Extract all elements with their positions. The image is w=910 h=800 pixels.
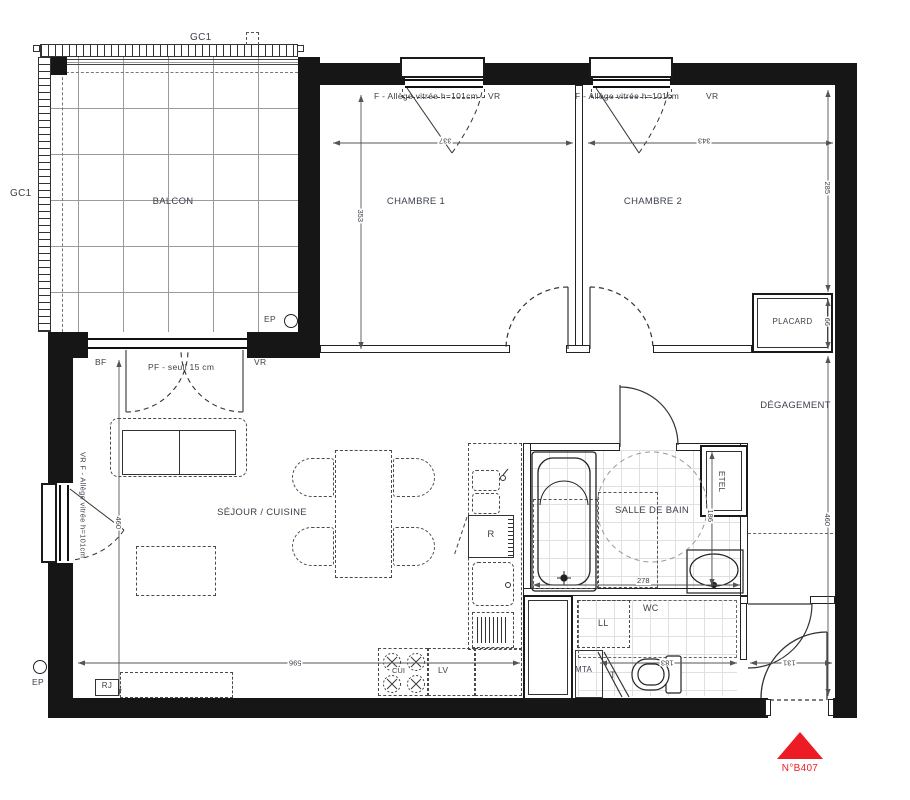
window2-vr-label: VR: [706, 92, 718, 101]
dim-chambre2-width: 343: [697, 137, 712, 145]
gc1-left-label: GC1: [10, 188, 31, 199]
fridge-door-swing: [454, 517, 467, 556]
room-label-wc: WC: [643, 604, 659, 614]
gc1-top-label: GC1: [190, 32, 211, 43]
rj-label: RJ: [95, 682, 119, 691]
room-label-chambre1: CHAMBRE 1: [378, 197, 454, 207]
dim-sdb-width: 278: [636, 577, 651, 585]
room-label-balcon: BALCON: [138, 197, 208, 207]
bathtub: [532, 452, 596, 591]
door-chambre2: [590, 287, 653, 349]
dim-chambre2-depth: 285: [824, 180, 832, 195]
ep-bottom-label: EP: [32, 678, 44, 687]
dim-placard-depth: 66: [823, 317, 831, 327]
bf-label: BF: [95, 358, 106, 367]
left-window-annotation: VR F - Allège vitrée h=101cm: [78, 452, 86, 597]
entrance-triangle: [777, 732, 823, 759]
pf-seuil-label: PF - seuil 15 cm: [148, 363, 214, 372]
floor-plan: GC1 GC1 BALCON CHAMBRE 1 CHAMBRE 2 F - A…: [0, 0, 910, 800]
door-salle-de-bain: [620, 385, 678, 447]
dim-sejour-width: 596: [288, 659, 303, 667]
washbasin: [687, 550, 743, 593]
dim-sejour-height: 460: [115, 515, 123, 530]
dimension-lines: [78, 90, 833, 696]
ep-top-label: EP: [264, 315, 276, 324]
t-label: T: [610, 671, 616, 681]
stove-label: CUI: [391, 667, 406, 675]
dishwasher-label: LV: [438, 666, 448, 675]
plan-number: N°B407: [769, 763, 831, 774]
window1-annotation: F - Allège vitrée h=101cm: [374, 92, 478, 101]
dim-degagement-height: 460: [824, 512, 832, 527]
etel-label: ETEL: [716, 452, 725, 512]
window1-vr-label: VR: [488, 92, 500, 101]
room-label-chambre2: CHAMBRE 2: [615, 197, 691, 207]
window2-annotation: F - Allège vitrée h=101cm: [575, 92, 679, 101]
room-label-salle-de-bain: SALLE DE BAIN: [597, 506, 707, 516]
dim-entree-width: 131: [782, 659, 797, 667]
dim-chambre1-width: 337: [438, 137, 453, 145]
door-porte-fenetre: [126, 350, 243, 412]
dim-sdb-height: 186: [707, 508, 715, 523]
room-label-placard: PLACARD: [757, 318, 828, 327]
room-label-sejour: SÉJOUR / CUISINE: [203, 508, 321, 518]
oven-knob: [506, 583, 511, 588]
dim-wc-width: 183: [660, 659, 675, 667]
sink-faucet: [501, 469, 509, 481]
fridge-label: R: [479, 530, 503, 540]
dim-chambre1-depth: 353: [357, 208, 365, 223]
washer-ll-label: LL: [598, 619, 609, 629]
pf-vr-label: VR: [254, 358, 266, 367]
door-chambre1: [506, 287, 568, 349]
room-label-degagement: DÉGAGEMENT: [748, 401, 843, 411]
mta-label: MTA: [575, 666, 592, 675]
